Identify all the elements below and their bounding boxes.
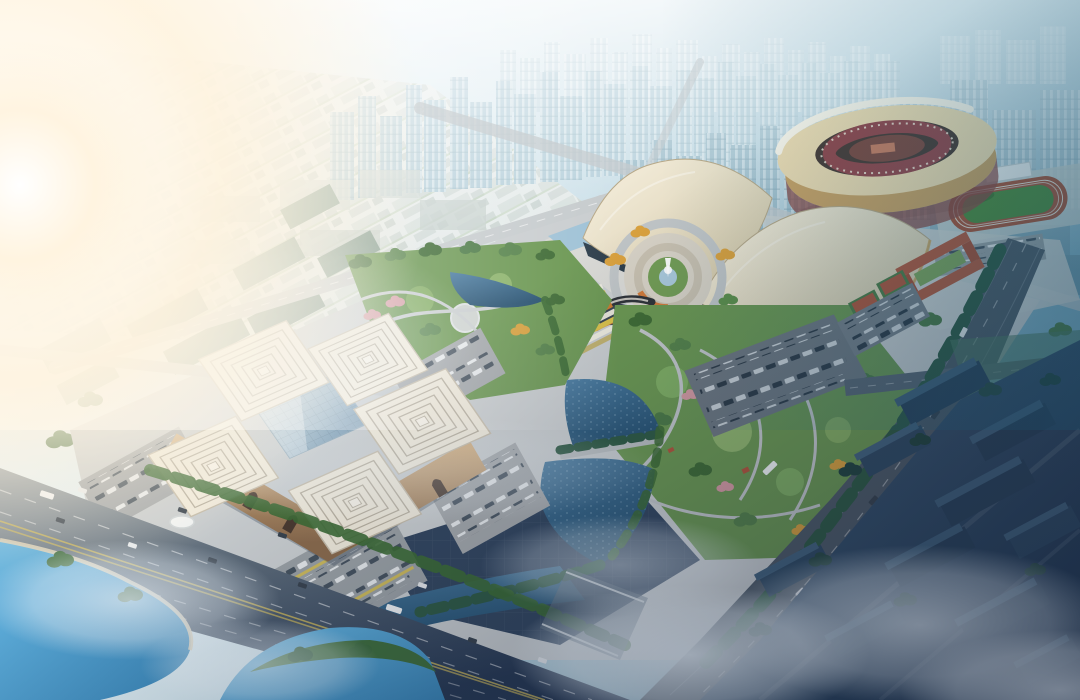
dusk-overlay: [0, 0, 1080, 700]
scene-canvas: [0, 0, 1080, 700]
architectural-rendering: [0, 0, 1080, 700]
